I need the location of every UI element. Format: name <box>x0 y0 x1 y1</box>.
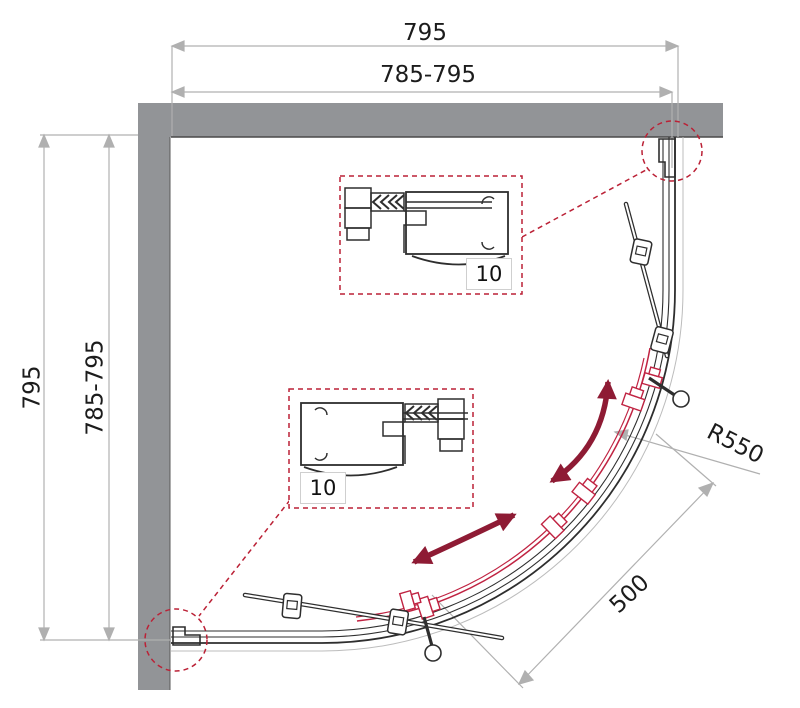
left-wall <box>138 103 170 690</box>
dim-side-overall: 795 <box>22 358 45 418</box>
dim-top-overall: 795 <box>385 22 465 45</box>
drawing-canvas <box>0 0 800 708</box>
dim-top-adjustable: 785-795 <box>358 64 498 87</box>
handle-bracket <box>630 238 653 265</box>
shower-enclosure-drawing: 795 785-795 795 785-795 R550 500 10 10 <box>0 0 800 708</box>
dim-side-adjustable: 785-795 <box>85 318 108 458</box>
handle-bracket <box>387 609 409 636</box>
slide-arrow-lower <box>414 515 514 562</box>
door-knob <box>649 378 689 407</box>
detail-top-thickness: 10 <box>466 258 512 290</box>
handle-bracket <box>282 593 302 618</box>
top-wall <box>138 103 723 137</box>
detail-bottom-thickness: 10 <box>300 472 346 504</box>
